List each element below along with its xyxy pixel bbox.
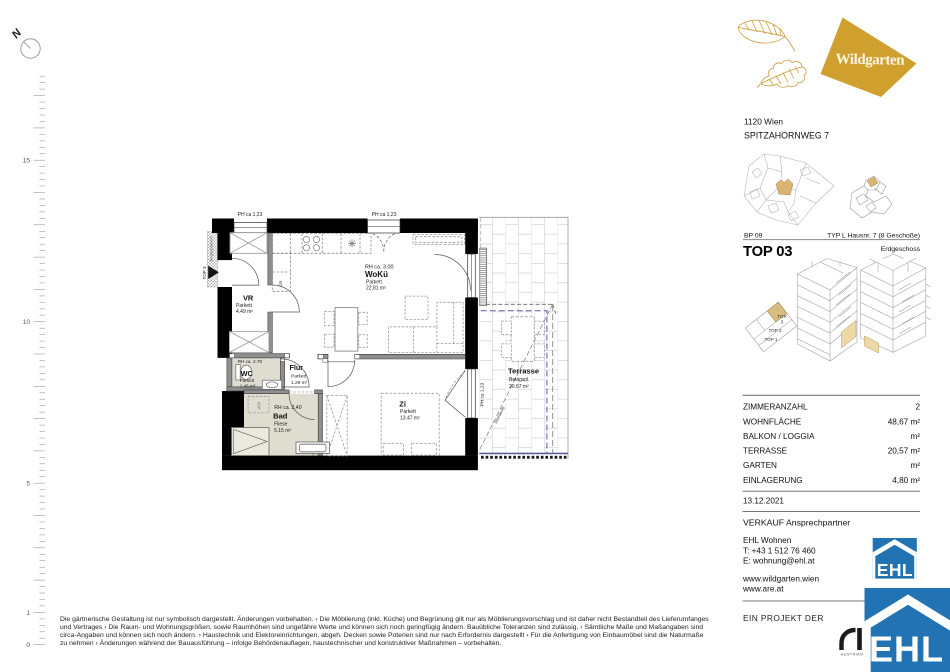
svg-text:VR: VR xyxy=(243,294,254,303)
svg-text:T: +43 1 512 76 460: T: +43 1 512 76 460 xyxy=(743,546,816,555)
svg-text:WOHNFLÄCHE: WOHNFLÄCHE xyxy=(743,416,802,426)
svg-text:Flur: Flur xyxy=(290,363,304,372)
svg-text:PH ca 1,23: PH ca 1,23 xyxy=(372,212,397,218)
svg-text:TERRASSE: TERRASSE xyxy=(743,447,788,456)
svg-text:Parkett: Parkett xyxy=(291,374,307,380)
svg-text:GB: GB xyxy=(278,281,283,287)
svg-text:AUSTRIAN: AUSTRIAN xyxy=(841,653,863,657)
svg-text:ZIMMERANZAHL: ZIMMERANZAHL xyxy=(743,403,808,412)
svg-text:13.47 m²: 13.47 m² xyxy=(400,415,420,421)
svg-text:PH ca 1,23: PH ca 1,23 xyxy=(480,382,486,406)
svg-text:TOP 03: TOP 03 xyxy=(743,244,792,260)
svg-text:Fliese: Fliese xyxy=(274,422,288,428)
svg-text:VERKAUF Ansprechpartner: VERKAUF Ansprechpartner xyxy=(743,518,850,528)
svg-text:1.29 m²: 1.29 m² xyxy=(291,380,308,386)
svg-text:48,67 m²: 48,67 m² xyxy=(888,417,921,426)
svg-text:EIN PROJEKT DER: EIN PROJEKT DER xyxy=(743,613,824,623)
svg-text:www.wildgarten.wien: www.wildgarten.wien xyxy=(742,574,819,583)
svg-text:10: 10 xyxy=(23,319,31,326)
svg-text:13.12.2021: 13.12.2021 xyxy=(743,497,784,506)
svg-text:1: 1 xyxy=(26,610,30,617)
svg-text:5: 5 xyxy=(26,481,30,488)
svg-text:Belagspl.: Belagspl. xyxy=(509,377,530,383)
svg-text:RH ca. 2.78: RH ca. 2.78 xyxy=(238,359,263,364)
svg-text:Eingangsbereich: Eingangsbereich xyxy=(210,236,214,261)
svg-text:Terrasse: Terrasse xyxy=(508,367,539,376)
svg-text:4.49 m²: 4.49 m² xyxy=(236,309,253,315)
svg-text:20,57 m²: 20,57 m² xyxy=(888,447,921,456)
svg-text:GARTEN: GARTEN xyxy=(743,461,777,470)
svg-text:SPITZAHORNWEG 7: SPITZAHORNWEG 7 xyxy=(744,130,829,140)
svg-text:WoKü: WoKü xyxy=(365,270,388,279)
svg-text:RH ca. 2.40: RH ca. 2.40 xyxy=(274,405,302,411)
svg-text:m²: m² xyxy=(910,432,920,441)
svg-text:TOP 3: TOP 3 xyxy=(202,266,207,280)
svg-text:20.57 m²: 20.57 m² xyxy=(509,384,529,390)
svg-text:EINLAGERUNG: EINLAGERUNG xyxy=(743,476,803,485)
svg-text:EHL: EHL xyxy=(877,560,913,580)
svg-text:22.81 m²: 22.81 m² xyxy=(366,286,386,292)
svg-text:Parkett: Parkett xyxy=(400,409,416,415)
svg-text:TOP 1: TOP 1 xyxy=(764,337,778,342)
svg-text:TOP: TOP xyxy=(777,314,786,319)
svg-text:1120 Wien: 1120 Wien xyxy=(744,117,783,127)
svg-text:EHL: EHL xyxy=(869,629,944,670)
svg-text:Wildgarten: Wildgarten xyxy=(835,52,905,69)
svg-text:Parkett: Parkett xyxy=(366,280,382,286)
svg-text:WC: WC xyxy=(241,369,253,378)
svg-text:0: 0 xyxy=(26,642,30,649)
svg-text:2: 2 xyxy=(915,403,920,412)
svg-text:5.15 m²: 5.15 m² xyxy=(274,428,291,434)
svg-text:TOP 2: TOP 2 xyxy=(768,328,782,333)
svg-text:BALKON / LOGGIA: BALKON / LOGGIA xyxy=(743,432,815,441)
svg-text:1.46 m²: 1.46 m² xyxy=(240,383,256,388)
svg-text:4,80 m²: 4,80 m² xyxy=(892,476,920,485)
svg-text:www.are.at: www.are.at xyxy=(742,585,784,594)
svg-text:N: N xyxy=(10,26,25,41)
svg-text:WM: WM xyxy=(257,402,262,410)
svg-text:E: wohnung@ehl.at: E: wohnung@ehl.at xyxy=(743,557,815,566)
svg-text:3: 3 xyxy=(781,320,784,325)
svg-text:Bad: Bad xyxy=(273,412,288,421)
svg-text:BP 09: BP 09 xyxy=(744,232,763,239)
svg-text:Zi: Zi xyxy=(399,399,406,408)
svg-text:PH ca 1,23: PH ca 1,23 xyxy=(238,212,263,218)
svg-text:TYP L Hausnr. 7 (8 Geschoße): TYP L Hausnr. 7 (8 Geschoße) xyxy=(827,232,920,239)
svg-text:m²: m² xyxy=(910,461,920,470)
svg-text:EHL Wohnen: EHL Wohnen xyxy=(743,536,792,545)
svg-text:15: 15 xyxy=(23,158,31,165)
svg-text:Erdgeschoss: Erdgeschoss xyxy=(881,246,921,253)
